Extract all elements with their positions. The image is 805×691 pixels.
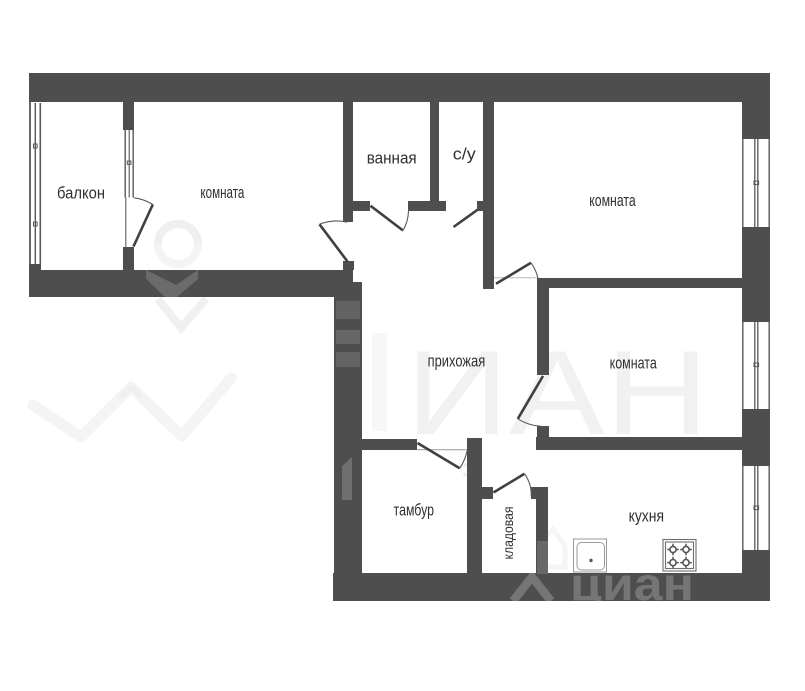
svg-text:комната: комната <box>200 183 244 202</box>
svg-text:комната: комната <box>589 191 636 210</box>
svg-text:комната: комната <box>610 353 658 372</box>
svg-text:ванная: ванная <box>367 149 417 168</box>
svg-text:кухня: кухня <box>629 507 664 526</box>
svg-text:кладовая: кладовая <box>500 507 516 560</box>
svg-text:балкон: балкон <box>57 184 105 203</box>
svg-text:прихожая: прихожая <box>428 351 486 370</box>
svg-text:с/у: с/у <box>453 145 477 164</box>
svg-text:тамбур: тамбур <box>394 501 435 520</box>
